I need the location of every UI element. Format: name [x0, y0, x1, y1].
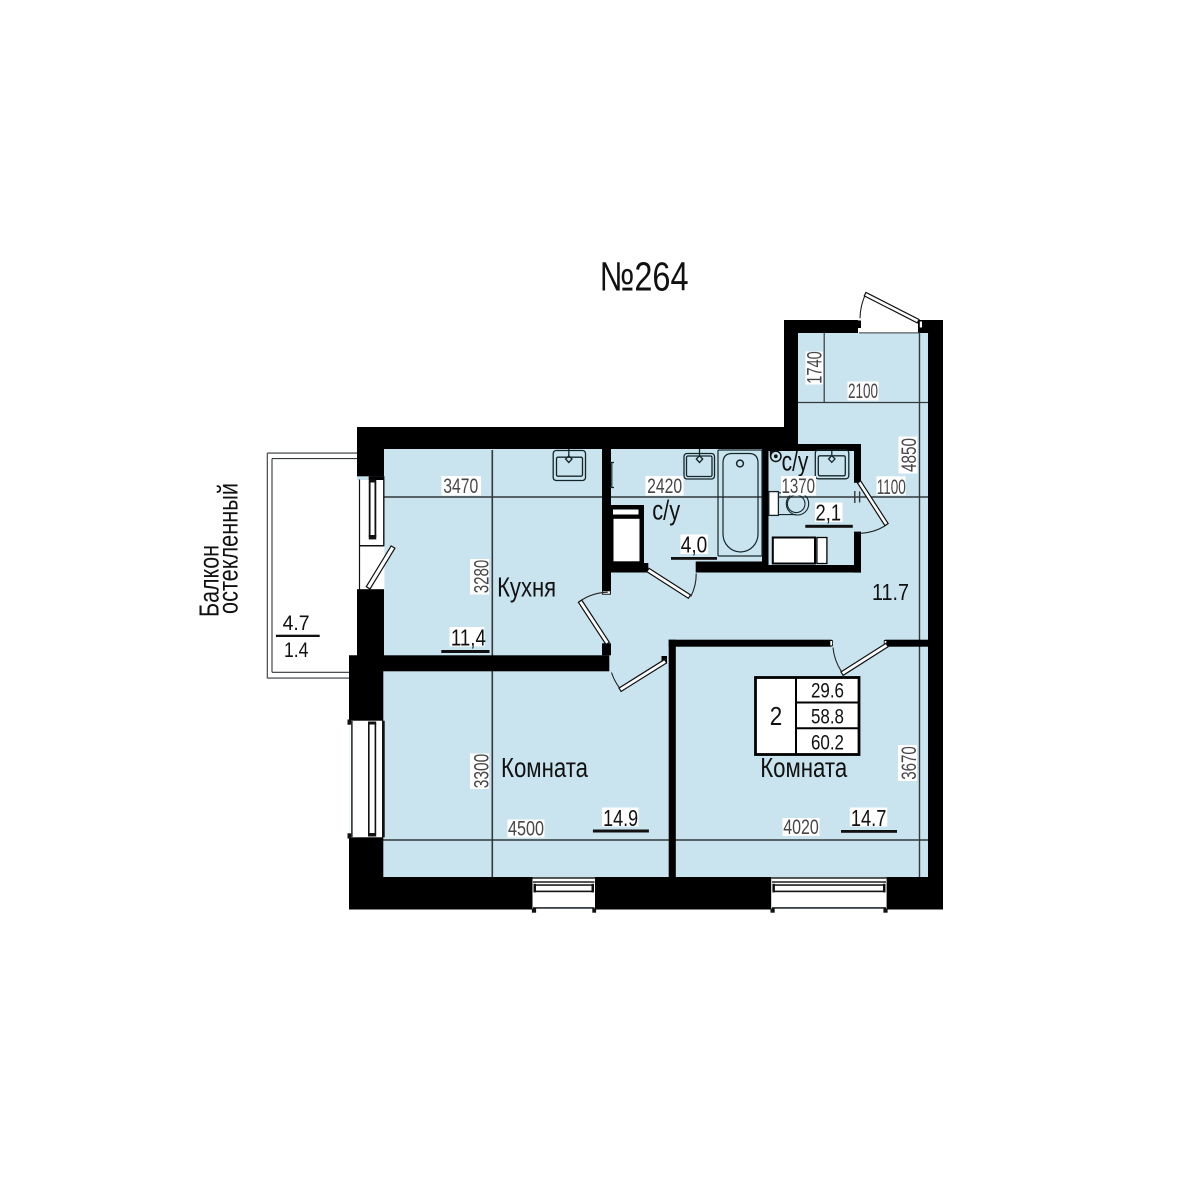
svg-text:Комната: Комната [760, 752, 847, 783]
svg-text:58.8: 58.8 [811, 704, 844, 728]
svg-text:3670: 3670 [898, 746, 921, 780]
svg-text:3470: 3470 [443, 475, 478, 498]
svg-text:2100: 2100 [848, 380, 878, 403]
svg-text:4020: 4020 [783, 816, 819, 839]
svg-text:1100: 1100 [877, 476, 906, 499]
svg-text:4500: 4500 [508, 817, 544, 840]
svg-text:2,1: 2,1 [816, 500, 842, 526]
svg-text:2420: 2420 [647, 475, 682, 498]
svg-text:с/у: с/у [782, 447, 809, 478]
svg-text:Кухня: Кухня [497, 572, 556, 603]
svg-text:14.9: 14.9 [603, 805, 638, 831]
svg-text:остекленный: остекленный [213, 483, 244, 614]
svg-text:60.2: 60.2 [811, 730, 844, 754]
svg-text:11,4: 11,4 [451, 625, 486, 651]
svg-text:4.7: 4.7 [283, 611, 310, 635]
svg-text:14.7: 14.7 [851, 805, 887, 831]
svg-text:3280: 3280 [471, 560, 494, 594]
svg-text:Комната: Комната [501, 752, 588, 783]
svg-text:2: 2 [770, 703, 783, 731]
svg-text:с/у: с/у [652, 495, 680, 526]
svg-text:3300: 3300 [470, 754, 493, 789]
svg-text:29.6: 29.6 [811, 678, 844, 702]
svg-text:1370: 1370 [782, 475, 816, 498]
svg-text:№264: №264 [600, 254, 689, 300]
svg-text:4850: 4850 [898, 438, 921, 472]
svg-text:1740: 1740 [804, 351, 827, 384]
svg-text:1.4: 1.4 [284, 638, 309, 662]
svg-text:11.7: 11.7 [872, 579, 909, 605]
svg-text:4,0: 4,0 [681, 531, 708, 557]
